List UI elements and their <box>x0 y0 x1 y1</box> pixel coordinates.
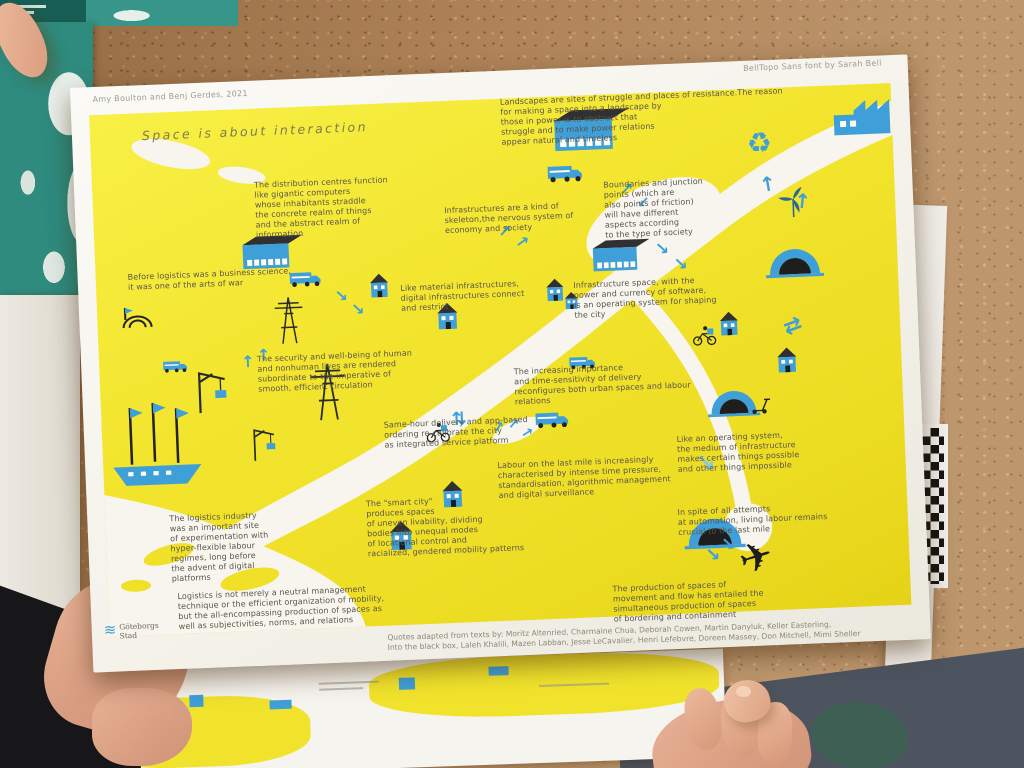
poster2-icon <box>399 677 415 690</box>
arts-of-war-icon <box>123 307 152 328</box>
photo-scene: Amy Boulton and Benj Gerdes, 2021 BellTo… <box>0 0 1024 768</box>
wall-strip <box>0 295 80 625</box>
flow-arrow-icon: ↘ <box>720 534 736 556</box>
left-hand-fingers <box>92 688 192 766</box>
logistics-poster: Amy Boulton and Benj Gerdes, 2021 BellTo… <box>70 54 931 672</box>
flow-arrow-icon: ↘ <box>655 239 670 260</box>
truck-icon <box>548 166 583 183</box>
flow-arrow-icon: ⇄ <box>780 311 806 341</box>
logo-waves-icon: ≋ <box>104 624 117 638</box>
poster2-icon <box>269 700 291 710</box>
flow-arrow-icon: ↘ <box>673 254 688 275</box>
poster2-icon <box>488 666 508 676</box>
flow-arrow-icon: ↘ <box>705 544 721 566</box>
flow-arrow-icon: ↑ <box>241 352 255 372</box>
harbour-crane-icon <box>199 372 227 413</box>
flow-arrow-icon: ↑ <box>793 188 812 214</box>
quote-boundaries: Boundaries and junction points (which ar… <box>603 174 770 241</box>
logo-text: Göteborgs Stad <box>119 622 159 641</box>
house-icon <box>777 347 797 372</box>
quote-logistics-industry: The logistics industry was an important … <box>169 508 327 584</box>
gothenburg-city-logo: ≋ Göteborgs Stad <box>104 622 160 641</box>
flow-arrow-icon: ↘ <box>334 286 348 306</box>
poster-authors: Amy Boulton and Benj Gerdes, 2021 <box>92 89 248 104</box>
quote-bordering-containment: The production of spaces of movement and… <box>612 576 828 625</box>
airplane-icon: ✈ <box>733 531 779 585</box>
quote-infrastructure-space: Infrastructure space, with the power and… <box>573 273 779 321</box>
harbour-crane-icon <box>254 429 276 460</box>
poster2-icon <box>189 695 203 707</box>
house-icon <box>370 273 389 297</box>
flow-arrow-icon: ↗ <box>514 231 530 252</box>
ship-icon <box>111 401 202 486</box>
factory-icon <box>833 99 890 135</box>
teal-poster-top-strip <box>86 0 238 26</box>
truck-icon <box>163 361 187 373</box>
power-pylon-icon <box>274 297 303 344</box>
font-credit: BellTopo Sans font by Sarah Bell <box>743 58 882 73</box>
bike-courier-icon <box>693 326 716 345</box>
poster2-text-line <box>319 687 363 691</box>
flow-arrow-icon: ↘ <box>351 299 365 319</box>
quote-operating-system: Like an operating system, the medium of … <box>676 427 872 475</box>
quote-smart-city: The "smart city" produces spaces of unev… <box>366 490 603 559</box>
right-thumb-nail <box>736 686 751 697</box>
quote-distribution-centres: The distribution centres function like g… <box>254 173 441 240</box>
